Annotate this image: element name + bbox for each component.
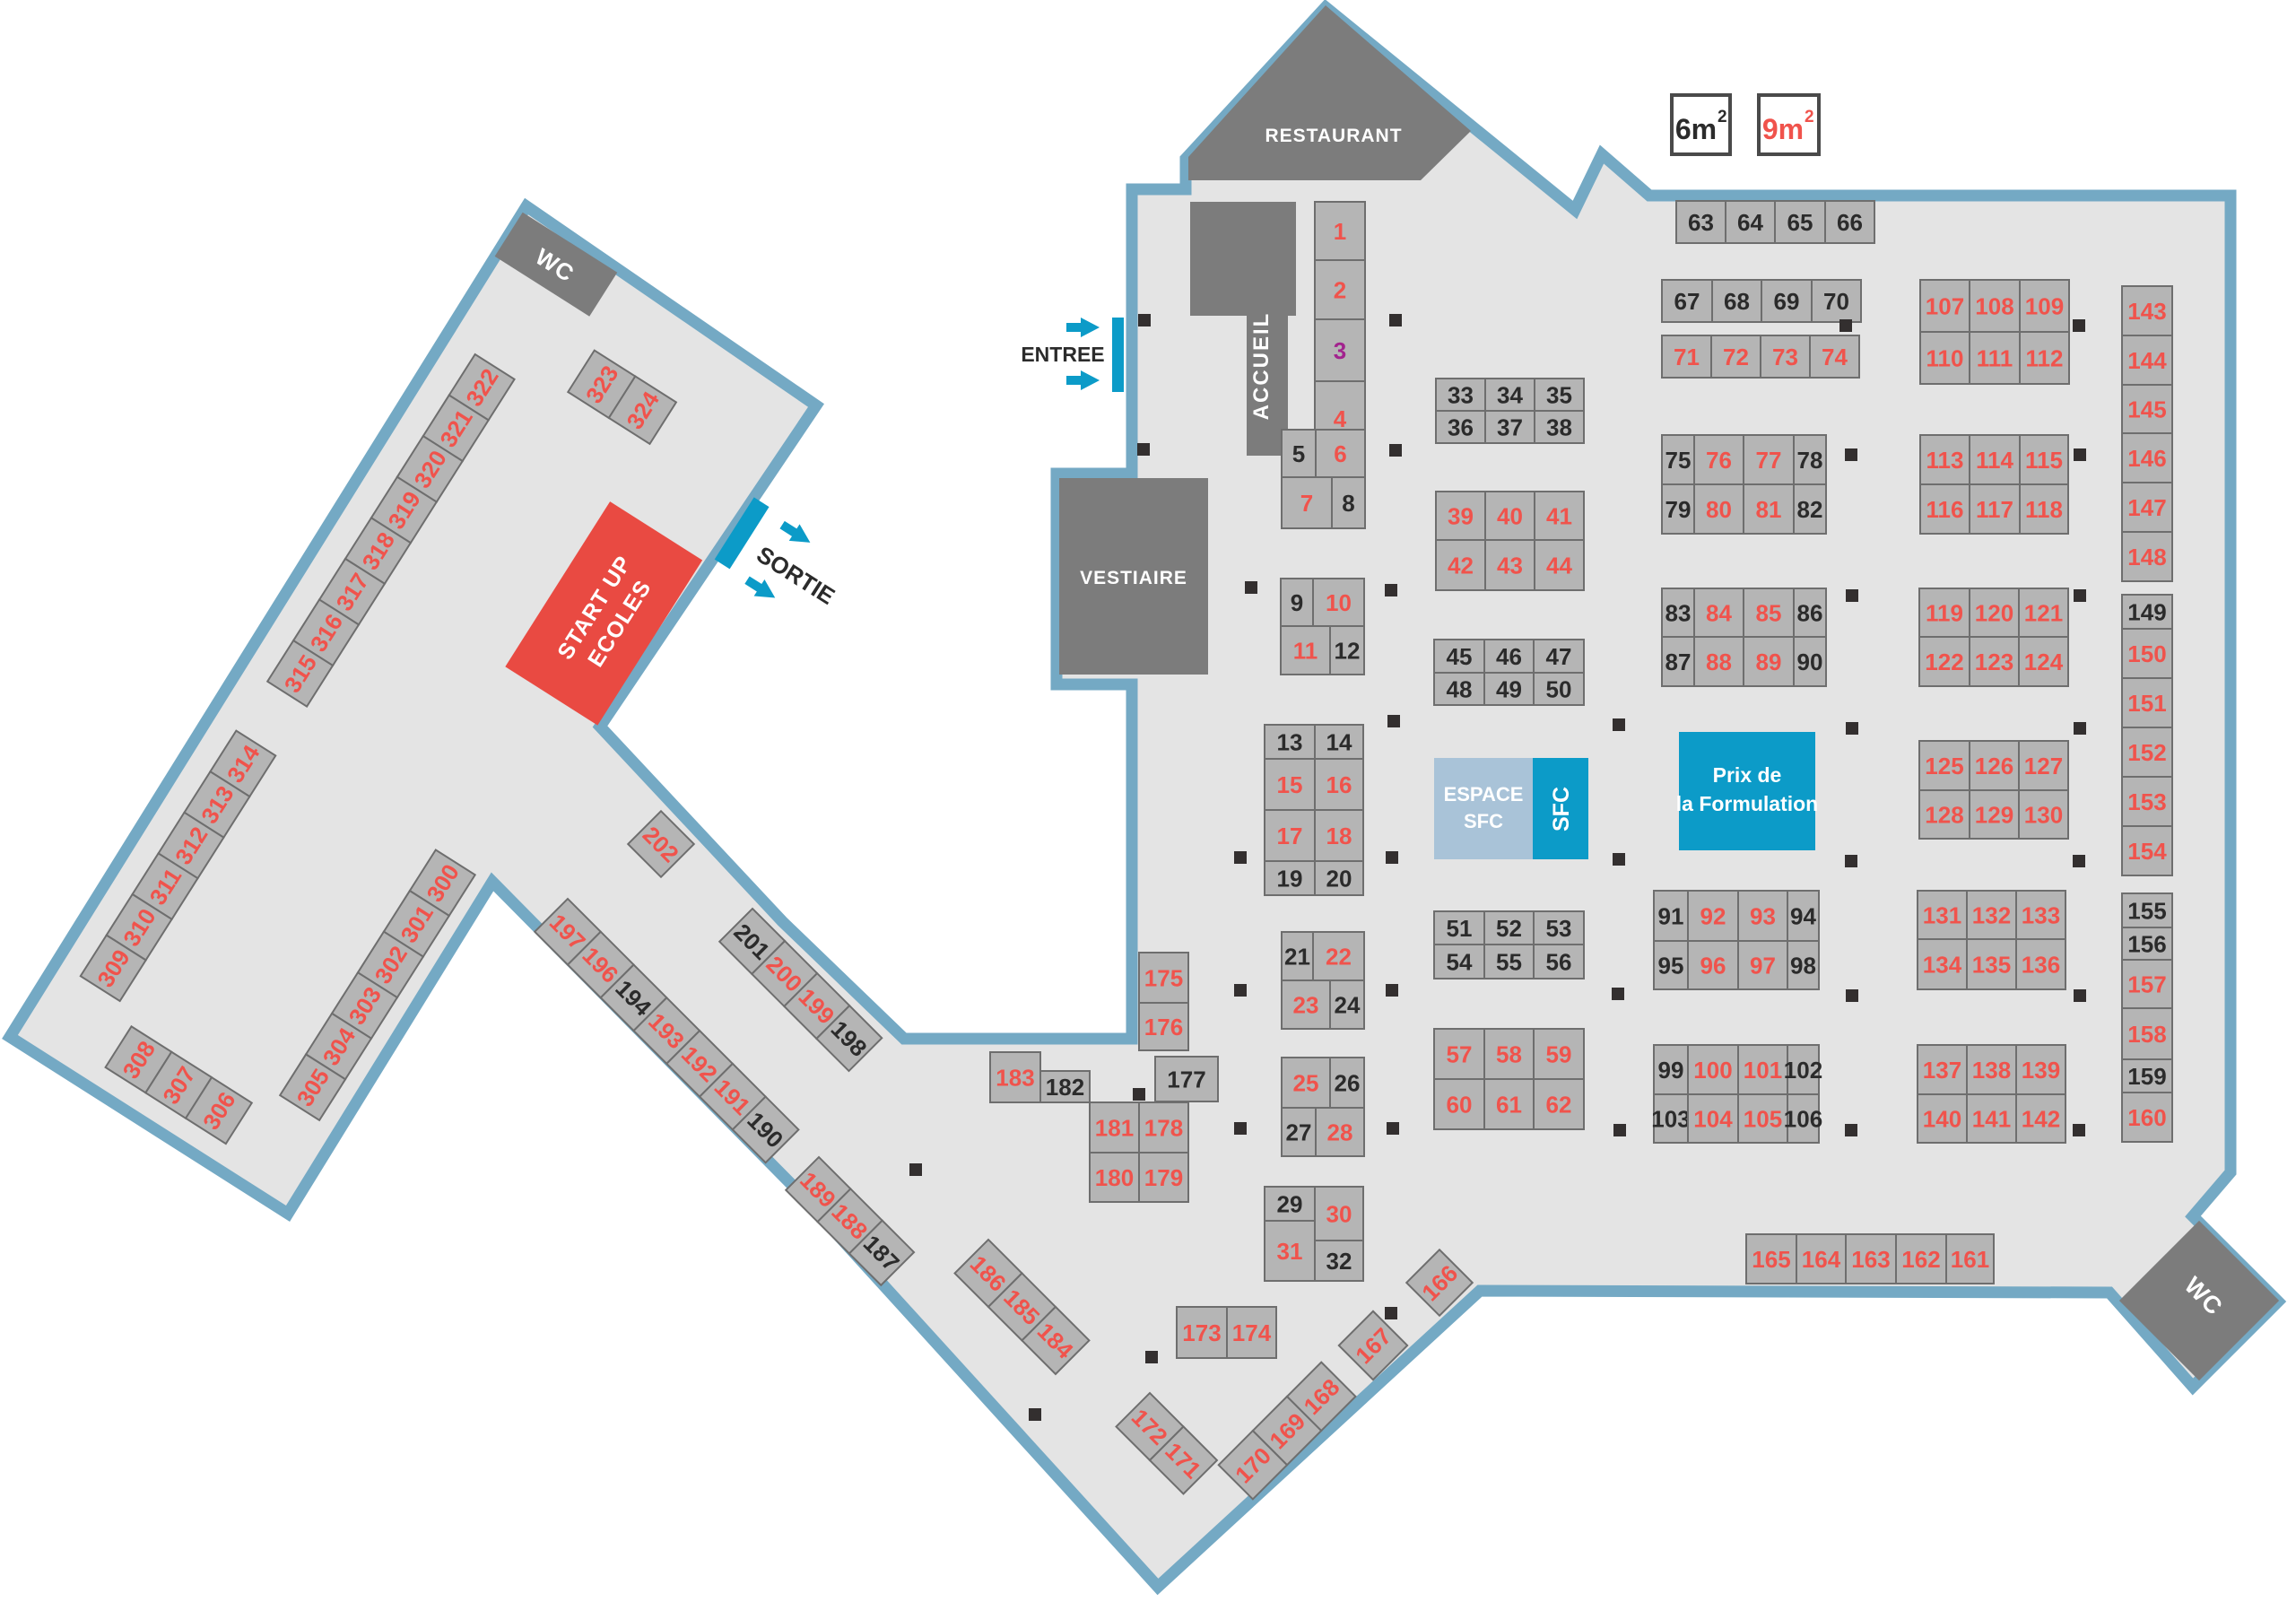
svg-text:145: 145 bbox=[2127, 396, 2166, 422]
svg-text:163: 163 bbox=[1851, 1246, 1890, 1273]
svg-text:76: 76 bbox=[1706, 447, 1732, 474]
svg-text:97: 97 bbox=[1750, 952, 1776, 979]
svg-text:132: 132 bbox=[1972, 901, 2011, 928]
svg-text:117: 117 bbox=[1976, 496, 2013, 523]
svg-text:137: 137 bbox=[1923, 1057, 1961, 1084]
svg-text:109: 109 bbox=[2025, 292, 2064, 319]
svg-text:123: 123 bbox=[1975, 649, 2013, 675]
svg-text:74: 74 bbox=[1822, 344, 1848, 370]
svg-text:90: 90 bbox=[1797, 649, 1823, 675]
svg-text:91: 91 bbox=[1658, 902, 1684, 929]
svg-text:16: 16 bbox=[1326, 771, 1352, 798]
svg-text:SFC: SFC bbox=[1549, 787, 1574, 831]
svg-text:147: 147 bbox=[2127, 494, 2166, 521]
svg-text:72: 72 bbox=[1723, 344, 1749, 370]
svg-text:83: 83 bbox=[1665, 599, 1692, 626]
svg-text:9: 9 bbox=[1291, 589, 1303, 616]
svg-text:28: 28 bbox=[1327, 1119, 1353, 1145]
svg-text:151: 151 bbox=[2127, 690, 2166, 717]
svg-text:180: 180 bbox=[1095, 1164, 1134, 1191]
svg-text:5: 5 bbox=[1292, 440, 1305, 467]
svg-text:116: 116 bbox=[1926, 496, 1964, 523]
svg-text:165: 165 bbox=[1752, 1246, 1790, 1273]
svg-text:29: 29 bbox=[1277, 1190, 1303, 1217]
svg-text:79: 79 bbox=[1665, 496, 1692, 523]
svg-text:24: 24 bbox=[1335, 991, 1361, 1018]
svg-text:114: 114 bbox=[1976, 447, 2013, 474]
svg-text:44: 44 bbox=[1546, 552, 1572, 579]
svg-text:100: 100 bbox=[1693, 1057, 1732, 1084]
svg-text:57: 57 bbox=[1447, 1040, 1473, 1067]
svg-text:150: 150 bbox=[2127, 640, 2166, 667]
svg-text:159: 159 bbox=[2127, 1063, 2166, 1090]
svg-text:SFC: SFC bbox=[1464, 810, 1503, 832]
svg-text:110: 110 bbox=[1926, 344, 1964, 371]
svg-text:182: 182 bbox=[1046, 1074, 1084, 1101]
svg-text:34: 34 bbox=[1497, 381, 1523, 408]
svg-text:106: 106 bbox=[1784, 1105, 1822, 1132]
svg-text:60: 60 bbox=[1447, 1091, 1473, 1118]
svg-text:6m: 6m bbox=[1675, 113, 1717, 145]
svg-text:55: 55 bbox=[1496, 948, 1522, 975]
svg-text:25: 25 bbox=[1293, 1069, 1319, 1096]
svg-text:143: 143 bbox=[2127, 298, 2166, 325]
svg-text:37: 37 bbox=[1497, 414, 1523, 440]
svg-text:162: 162 bbox=[1901, 1246, 1940, 1273]
svg-text:101: 101 bbox=[1744, 1057, 1782, 1084]
svg-text:la Formulation: la Formulation bbox=[1676, 792, 1818, 815]
svg-text:174: 174 bbox=[1232, 1319, 1272, 1346]
svg-text:104: 104 bbox=[1693, 1105, 1733, 1132]
svg-text:6: 6 bbox=[1334, 440, 1346, 467]
svg-text:56: 56 bbox=[1546, 948, 1572, 975]
svg-text:4: 4 bbox=[1334, 405, 1347, 432]
svg-text:153: 153 bbox=[2127, 788, 2166, 815]
svg-text:8: 8 bbox=[1342, 490, 1354, 517]
svg-text:183: 183 bbox=[996, 1064, 1034, 1091]
svg-text:142: 142 bbox=[2022, 1105, 2060, 1132]
svg-text:43: 43 bbox=[1497, 552, 1523, 579]
svg-text:86: 86 bbox=[1797, 599, 1823, 626]
svg-text:157: 157 bbox=[2127, 971, 2166, 997]
svg-text:36: 36 bbox=[1448, 414, 1474, 440]
svg-text:20: 20 bbox=[1326, 865, 1352, 892]
svg-text:11: 11 bbox=[1293, 637, 1318, 664]
svg-text:2: 2 bbox=[1805, 108, 1814, 126]
svg-text:68: 68 bbox=[1724, 288, 1750, 315]
svg-text:128: 128 bbox=[1925, 801, 1963, 828]
svg-text:115: 115 bbox=[2025, 447, 2063, 474]
svg-text:14: 14 bbox=[1326, 728, 1352, 755]
svg-text:119: 119 bbox=[1926, 599, 1963, 626]
svg-text:125: 125 bbox=[1925, 753, 1963, 779]
svg-text:3: 3 bbox=[1334, 337, 1346, 364]
svg-text:155: 155 bbox=[2127, 897, 2166, 924]
svg-text:107: 107 bbox=[1926, 292, 1964, 319]
svg-text:85: 85 bbox=[1756, 599, 1782, 626]
svg-text:35: 35 bbox=[1546, 381, 1572, 408]
svg-text:138: 138 bbox=[1972, 1057, 2011, 1084]
svg-text:129: 129 bbox=[1975, 801, 2013, 828]
svg-text:7: 7 bbox=[1300, 490, 1313, 517]
svg-text:27: 27 bbox=[1286, 1119, 1312, 1145]
svg-text:ENTREE: ENTREE bbox=[1021, 343, 1104, 366]
svg-text:87: 87 bbox=[1665, 649, 1692, 675]
svg-text:121: 121 bbox=[2024, 599, 2063, 626]
svg-text:134: 134 bbox=[1923, 951, 1962, 978]
svg-text:88: 88 bbox=[1706, 649, 1732, 675]
svg-text:175: 175 bbox=[1144, 964, 1183, 991]
svg-text:127: 127 bbox=[2024, 753, 2063, 779]
svg-text:146: 146 bbox=[2127, 445, 2166, 472]
svg-text:124: 124 bbox=[2024, 649, 2064, 675]
svg-text:45: 45 bbox=[1447, 643, 1473, 670]
svg-text:ACCUEIL: ACCUEIL bbox=[1249, 312, 1274, 421]
svg-text:94: 94 bbox=[1790, 902, 1816, 929]
svg-text:59: 59 bbox=[1546, 1040, 1572, 1067]
svg-text:50: 50 bbox=[1546, 675, 1572, 702]
svg-text:70: 70 bbox=[1823, 288, 1849, 315]
svg-text:99: 99 bbox=[1658, 1057, 1684, 1084]
svg-text:136: 136 bbox=[2022, 951, 2060, 978]
svg-text:42: 42 bbox=[1448, 552, 1474, 579]
svg-text:26: 26 bbox=[1335, 1069, 1361, 1096]
svg-text:139: 139 bbox=[2022, 1057, 2060, 1084]
svg-text:102: 102 bbox=[1784, 1057, 1822, 1084]
svg-text:73: 73 bbox=[1772, 344, 1798, 370]
svg-text:152: 152 bbox=[2127, 739, 2166, 766]
svg-text:22: 22 bbox=[1326, 943, 1352, 970]
svg-text:149: 149 bbox=[2127, 598, 2166, 625]
svg-text:VESTIAIRE: VESTIAIRE bbox=[1080, 568, 1187, 588]
svg-text:118: 118 bbox=[2025, 496, 2063, 523]
svg-text:40: 40 bbox=[1497, 502, 1523, 529]
svg-text:33: 33 bbox=[1448, 381, 1474, 408]
svg-text:71: 71 bbox=[1674, 344, 1700, 370]
svg-text:69: 69 bbox=[1774, 288, 1800, 315]
svg-text:30: 30 bbox=[1326, 1200, 1352, 1227]
svg-text:133: 133 bbox=[2022, 901, 2060, 928]
svg-text:131: 131 bbox=[1923, 901, 1961, 928]
svg-text:160: 160 bbox=[2127, 1104, 2166, 1131]
svg-text:19: 19 bbox=[1277, 865, 1303, 892]
svg-text:78: 78 bbox=[1797, 447, 1823, 474]
svg-text:66: 66 bbox=[1837, 209, 1863, 236]
svg-text:141: 141 bbox=[1972, 1105, 2011, 1132]
svg-text:178: 178 bbox=[1144, 1114, 1183, 1141]
svg-text:75: 75 bbox=[1665, 447, 1692, 474]
svg-text:17: 17 bbox=[1277, 823, 1303, 849]
svg-text:81: 81 bbox=[1756, 496, 1782, 523]
svg-text:77: 77 bbox=[1756, 447, 1782, 474]
svg-text:156: 156 bbox=[2127, 930, 2166, 957]
svg-text:120: 120 bbox=[1975, 599, 2013, 626]
svg-text:112: 112 bbox=[2026, 344, 2064, 371]
svg-text:1: 1 bbox=[1334, 218, 1346, 245]
svg-text:12: 12 bbox=[1335, 637, 1361, 664]
svg-text:158: 158 bbox=[2127, 1021, 2166, 1048]
svg-text:144: 144 bbox=[2127, 347, 2167, 374]
svg-text:135: 135 bbox=[1972, 951, 2011, 978]
svg-text:173: 173 bbox=[1182, 1319, 1221, 1346]
svg-text:2: 2 bbox=[1718, 108, 1727, 126]
svg-text:51: 51 bbox=[1447, 915, 1473, 942]
svg-text:105: 105 bbox=[1744, 1105, 1782, 1132]
svg-text:2: 2 bbox=[1334, 276, 1346, 303]
svg-text:10: 10 bbox=[1326, 589, 1352, 616]
svg-text:41: 41 bbox=[1546, 502, 1572, 529]
svg-text:32: 32 bbox=[1326, 1248, 1352, 1275]
svg-text:122: 122 bbox=[1925, 649, 1963, 675]
svg-text:49: 49 bbox=[1496, 675, 1522, 702]
svg-text:65: 65 bbox=[1787, 209, 1813, 236]
svg-text:54: 54 bbox=[1447, 948, 1473, 975]
svg-text:ESPACE: ESPACE bbox=[1444, 783, 1524, 805]
svg-text:63: 63 bbox=[1688, 209, 1714, 236]
svg-text:RESTAURANT: RESTAURANT bbox=[1265, 126, 1402, 146]
svg-text:89: 89 bbox=[1756, 649, 1782, 675]
svg-text:46: 46 bbox=[1496, 643, 1522, 670]
svg-text:181: 181 bbox=[1095, 1114, 1134, 1141]
svg-text:111: 111 bbox=[1977, 344, 2013, 371]
svg-text:103: 103 bbox=[1651, 1105, 1690, 1132]
svg-text:52: 52 bbox=[1496, 915, 1522, 942]
svg-text:18: 18 bbox=[1326, 823, 1352, 849]
svg-text:9m: 9m bbox=[1762, 113, 1804, 145]
svg-text:62: 62 bbox=[1546, 1091, 1572, 1118]
svg-text:148: 148 bbox=[2127, 544, 2166, 570]
svg-text:126: 126 bbox=[1975, 753, 2013, 779]
svg-text:179: 179 bbox=[1144, 1164, 1183, 1191]
svg-text:39: 39 bbox=[1448, 502, 1474, 529]
svg-text:154: 154 bbox=[2127, 838, 2167, 865]
svg-text:92: 92 bbox=[1700, 902, 1726, 929]
svg-text:48: 48 bbox=[1447, 675, 1473, 702]
svg-text:23: 23 bbox=[1293, 991, 1319, 1018]
svg-text:SORTIE: SORTIE bbox=[752, 541, 839, 610]
svg-text:Prix de: Prix de bbox=[1713, 763, 1782, 787]
svg-text:21: 21 bbox=[1284, 943, 1310, 970]
svg-text:61: 61 bbox=[1496, 1091, 1522, 1118]
svg-text:176: 176 bbox=[1144, 1014, 1183, 1040]
svg-text:15: 15 bbox=[1277, 771, 1303, 798]
svg-text:164: 164 bbox=[1802, 1246, 1841, 1273]
svg-text:98: 98 bbox=[1790, 952, 1816, 979]
svg-text:31: 31 bbox=[1277, 1238, 1303, 1265]
svg-text:84: 84 bbox=[1706, 599, 1732, 626]
svg-text:38: 38 bbox=[1546, 414, 1572, 440]
svg-text:58: 58 bbox=[1496, 1040, 1522, 1067]
svg-text:140: 140 bbox=[1923, 1105, 1961, 1132]
svg-text:80: 80 bbox=[1706, 496, 1732, 523]
svg-text:161: 161 bbox=[1951, 1246, 1989, 1273]
svg-text:82: 82 bbox=[1797, 496, 1823, 523]
svg-text:96: 96 bbox=[1700, 952, 1726, 979]
svg-text:64: 64 bbox=[1737, 209, 1763, 236]
svg-text:53: 53 bbox=[1546, 915, 1572, 942]
svg-text:177: 177 bbox=[1167, 1066, 1205, 1093]
svg-text:47: 47 bbox=[1546, 643, 1572, 670]
svg-text:67: 67 bbox=[1674, 288, 1700, 315]
svg-text:130: 130 bbox=[2024, 801, 2063, 828]
svg-text:13: 13 bbox=[1277, 728, 1303, 755]
svg-text:108: 108 bbox=[1975, 292, 2013, 319]
svg-text:95: 95 bbox=[1658, 952, 1684, 979]
svg-text:93: 93 bbox=[1750, 902, 1776, 929]
svg-text:113: 113 bbox=[1926, 447, 1964, 474]
